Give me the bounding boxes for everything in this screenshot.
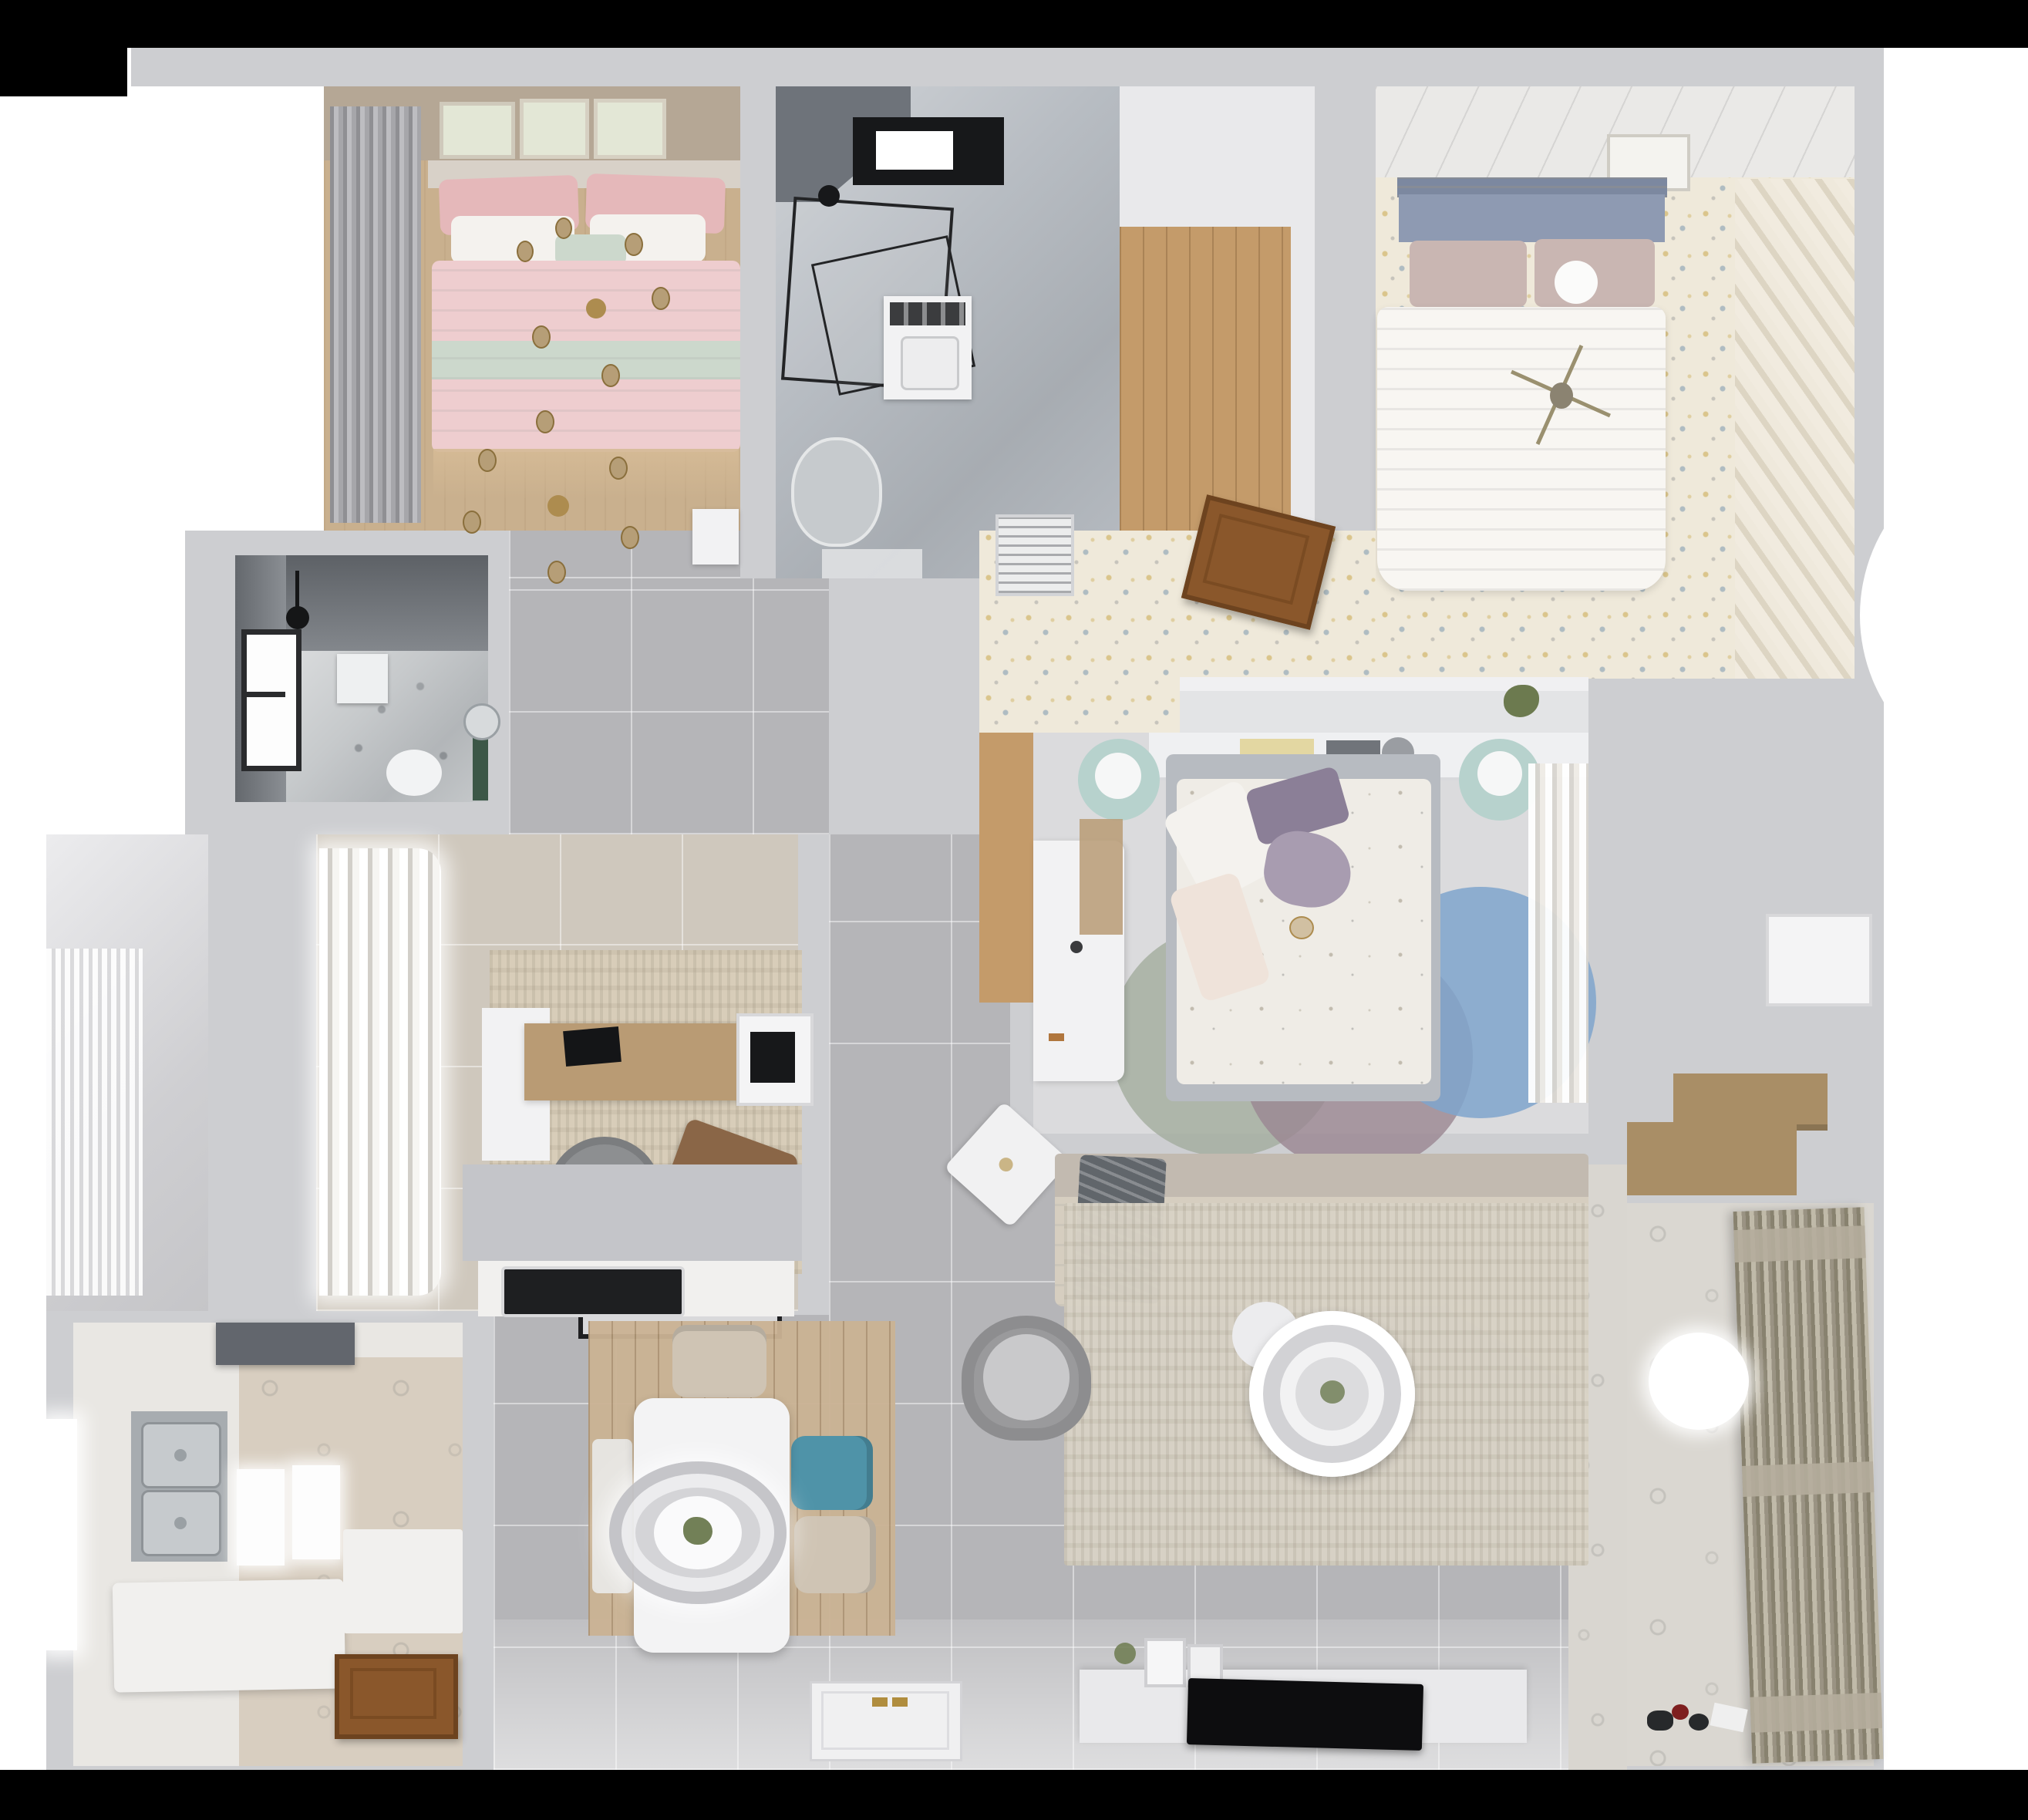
exterior-cutout-midleft [0, 531, 185, 834]
rack-rail [1742, 1461, 1874, 1497]
border-black-top [0, 0, 2028, 48]
door-panel-line [1202, 514, 1309, 605]
door-panel-line [350, 1668, 436, 1719]
nightstand [692, 509, 739, 565]
armchair-seat [983, 1334, 1070, 1421]
console-decor-plant [1114, 1643, 1136, 1664]
border-black-corner [0, 0, 127, 96]
chandelier-bulb [609, 457, 628, 480]
sink-counter [131, 1411, 227, 1562]
ceiling-light-glow [1649, 1333, 1749, 1430]
counter-ledge [343, 1529, 463, 1633]
dining-chair-beige [794, 1516, 876, 1593]
chandelier-bulb [621, 526, 639, 549]
toilet [791, 437, 882, 547]
console-decor-frames [1144, 1638, 1186, 1687]
wall-frame-icon [594, 99, 666, 159]
chandelier-bulb [532, 325, 551, 349]
study-window-slats [46, 949, 143, 1296]
exterior-cutout-topleft [0, 86, 324, 531]
chandelier-bulb [536, 410, 554, 433]
island-light-panel [237, 1469, 285, 1566]
skylight-window-icon [853, 117, 1004, 185]
floor-paper [1710, 1703, 1747, 1732]
skylight-pane [876, 131, 953, 170]
counter-slab [113, 1579, 345, 1692]
drying-rack [1733, 1207, 1884, 1763]
room-bedroom-blush [324, 86, 740, 531]
bath2-shelf [337, 654, 388, 703]
exterior-cutout-right [1884, 48, 2028, 1770]
chandelier-bulb [652, 287, 670, 310]
washer-drum [901, 336, 959, 390]
kitchen-window-glow [45, 1419, 77, 1650]
cooktop-icon [501, 1266, 685, 1317]
chandelier-hub [586, 298, 606, 318]
wall-frame-icon [440, 102, 515, 159]
wall-vent-icon [995, 514, 1074, 596]
island-light-panel [292, 1465, 340, 1559]
chandelier-icon [509, 225, 679, 395]
chandelier-bulb [625, 233, 643, 256]
floorplan-canvas [0, 0, 2028, 1820]
chandelier-bulb [478, 449, 497, 472]
bed2-gold-dot [1289, 916, 1314, 939]
chandelier-bulb [555, 217, 572, 239]
drain-dot [174, 1517, 187, 1529]
open-door-wood [335, 1654, 458, 1739]
tv-flat-icon [1187, 1678, 1423, 1751]
storage-wood-floor [1120, 227, 1291, 531]
desk-decor-dot [1049, 1033, 1064, 1041]
chandelier-cross-icon [1507, 341, 1615, 449]
bath2-window-icon [241, 629, 302, 771]
entry-door-panel [810, 1681, 962, 1761]
armchair-gray [962, 1316, 1091, 1441]
laundry-top-niche-wood [1627, 1122, 1797, 1195]
bathmat [822, 549, 922, 578]
desk-white-vertical [1033, 841, 1124, 1081]
room-bathroom-main [776, 86, 1120, 578]
pouf-mint [1078, 739, 1160, 821]
door-handle-gold [872, 1697, 888, 1707]
master-sheer-curtains [1735, 179, 1855, 679]
room-bedroom-master [1376, 86, 1855, 679]
pendant-lamp-icon [609, 1461, 787, 1604]
coffee-table-round [1249, 1311, 1415, 1477]
closet-wood-strip [979, 733, 1033, 1003]
floor-toy [1672, 1704, 1689, 1720]
hallway-floor-mid [509, 578, 829, 834]
washer-control-panel [890, 302, 965, 325]
roman-blinds [330, 106, 421, 523]
chandelier-hub [547, 495, 569, 517]
shower-arm [295, 571, 299, 609]
chandelier-bulb [517, 241, 534, 262]
steel-sink [141, 1422, 221, 1488]
dining-upper-cabinet-band [463, 1164, 802, 1261]
round-mirror-icon [463, 703, 500, 740]
steel-sink [141, 1490, 221, 1556]
rack-rail [1733, 1225, 1865, 1262]
floor-toy [1689, 1714, 1709, 1731]
chandelier-bulb [463, 511, 481, 534]
laptop-icon [563, 1026, 622, 1067]
door-handle-gold [892, 1697, 908, 1707]
plant-icon [1320, 1380, 1345, 1404]
drain-dot [174, 1449, 187, 1461]
closet-sheer-curtains [1528, 763, 1588, 1103]
plant-icon [683, 1517, 712, 1545]
room-laundry [1627, 1203, 1874, 1766]
wall-frame-icon [520, 99, 589, 159]
border-black-bottom [0, 1770, 2028, 1820]
master-headboard [1399, 194, 1665, 242]
study-billow-curtains [319, 848, 441, 1296]
chandelier-hub [1550, 383, 1573, 409]
pouf-top [1477, 751, 1522, 796]
floor-toy [1647, 1710, 1673, 1731]
shower-head-icon [286, 606, 309, 629]
washing-machine [884, 296, 972, 399]
room-storage [1120, 86, 1315, 531]
desk-decor-dot [1070, 941, 1083, 953]
hall-right-door-white [1766, 914, 1872, 1006]
master-round-pillow [1555, 261, 1598, 304]
room-bedroom-middle [1033, 733, 1588, 1134]
room-kitchen [73, 1323, 463, 1766]
monitor-screen [750, 1032, 795, 1083]
window-crossbar [247, 692, 285, 697]
toilet [386, 750, 442, 796]
monitor-board [736, 1013, 814, 1106]
shower-head-icon [818, 185, 840, 207]
pouf-top [1095, 753, 1141, 799]
stool-decor-dot [996, 1154, 1016, 1174]
room-bathroom-small [235, 555, 488, 802]
dining-chair-teal [791, 1436, 873, 1510]
desk-wood-inset [1080, 819, 1123, 935]
chandelier-bulb [547, 561, 566, 584]
range-hood [216, 1323, 355, 1365]
master-pillow [1410, 241, 1527, 307]
dining-chair-beige [672, 1325, 766, 1397]
chandelier-bulb [601, 364, 620, 387]
rack-rail [1750, 1693, 1883, 1733]
chandelier-icon [463, 410, 648, 588]
